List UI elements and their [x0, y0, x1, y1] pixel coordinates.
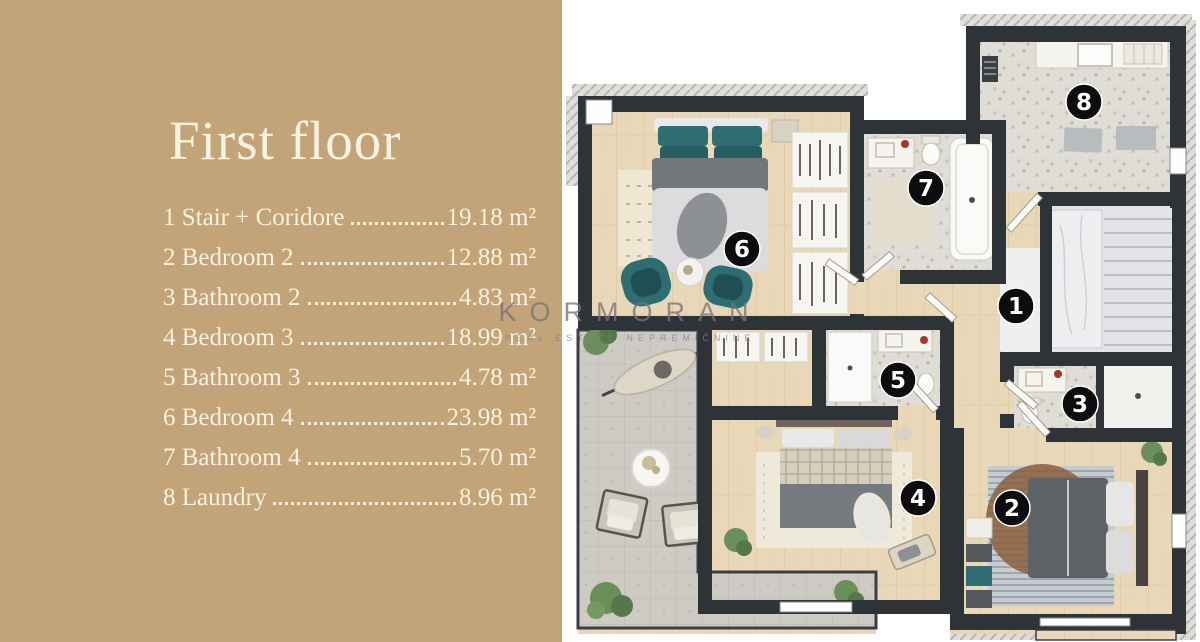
legend-area: 18.99 m² — [447, 324, 536, 352]
room-badge-number: 4 — [910, 486, 926, 512]
terrace-chair — [596, 490, 647, 538]
bathtub — [950, 138, 994, 260]
legend-area: 4.83 m² — [459, 284, 536, 312]
legend-dots — [308, 302, 457, 305]
legend-dots — [351, 222, 443, 225]
legend-dots — [308, 382, 457, 385]
nightstand — [894, 427, 912, 441]
legend-item: 3 Bathroom 2 4.83 m² — [163, 284, 536, 312]
legend-dots — [301, 262, 444, 265]
legend-item: 6 Bedroom 4 23.98 m² — [163, 404, 536, 432]
legend-area: 5.70 m² — [459, 444, 536, 472]
legend-label: 5 Bathroom 3 — [163, 364, 301, 392]
legend-area: 4.78 m² — [459, 364, 536, 392]
floor-title: First floor — [169, 112, 536, 170]
legend-label: 1 Stair + Coridore — [163, 204, 344, 232]
legend-label: 8 Laundry — [163, 484, 266, 512]
room-badge-number: 8 — [1076, 90, 1092, 116]
legend-dots — [273, 502, 456, 505]
legend-area: 23.98 m² — [447, 404, 536, 432]
legend-area: 8.96 m² — [459, 484, 536, 512]
legend-panel: First floor 1 Stair + Coridore 19.18 m² … — [0, 0, 562, 642]
slide-root: First floor 1 Stair + Coridore 19.18 m² … — [0, 0, 1200, 642]
nightstand — [757, 425, 775, 439]
balcony-ledge — [1036, 630, 1176, 640]
legend-label: 6 Bedroom 4 — [163, 404, 294, 432]
staircase — [1046, 206, 1172, 352]
legend-label: 4 Bedroom 3 — [163, 324, 294, 352]
room-badge-number: 2 — [1004, 496, 1020, 522]
room-badge-number: 6 — [734, 237, 750, 263]
toilet — [922, 136, 940, 165]
wardrobe — [792, 132, 848, 314]
legend-item: 1 Stair + Coridore 19.18 m² — [163, 204, 536, 232]
legend-dots — [301, 422, 444, 425]
terrace-table — [632, 449, 670, 487]
legend-item: 8 Laundry 8.96 m² — [163, 484, 536, 512]
boiler — [982, 56, 998, 82]
room-badge-number: 5 — [890, 368, 906, 394]
legend-area: 19.18 m² — [447, 204, 536, 232]
mat — [1064, 127, 1103, 152]
room-badge-number: 7 — [918, 176, 934, 202]
floor-plan: 12345678 — [562, 0, 1200, 642]
legend-item: 5 Bathroom 3 4.78 m² — [163, 364, 536, 392]
legend-dots — [308, 462, 457, 465]
legend-area: 12.88 m² — [447, 244, 536, 272]
floor-plan-area: 12345678 — [562, 0, 1200, 642]
legend-item: 4 Bedroom 3 18.99 m² — [163, 324, 536, 352]
room-badge-number: 3 — [1072, 392, 1088, 418]
legend-list: 1 Stair + Coridore 19.18 m² 2 Bedroom 2 … — [163, 204, 536, 512]
sink — [1078, 44, 1112, 66]
legend-label: 2 Bedroom 2 — [163, 244, 294, 272]
legend-label: 7 Bathroom 4 — [163, 444, 301, 472]
legend-item: 7 Bathroom 4 5.70 m² — [163, 444, 536, 472]
mat — [1116, 126, 1156, 150]
room-badge-number: 1 — [1008, 294, 1024, 320]
legend-item: 2 Bedroom 2 12.88 m² — [163, 244, 536, 272]
legend-dots — [301, 342, 444, 345]
legend-label: 3 Bathroom 2 — [163, 284, 301, 312]
